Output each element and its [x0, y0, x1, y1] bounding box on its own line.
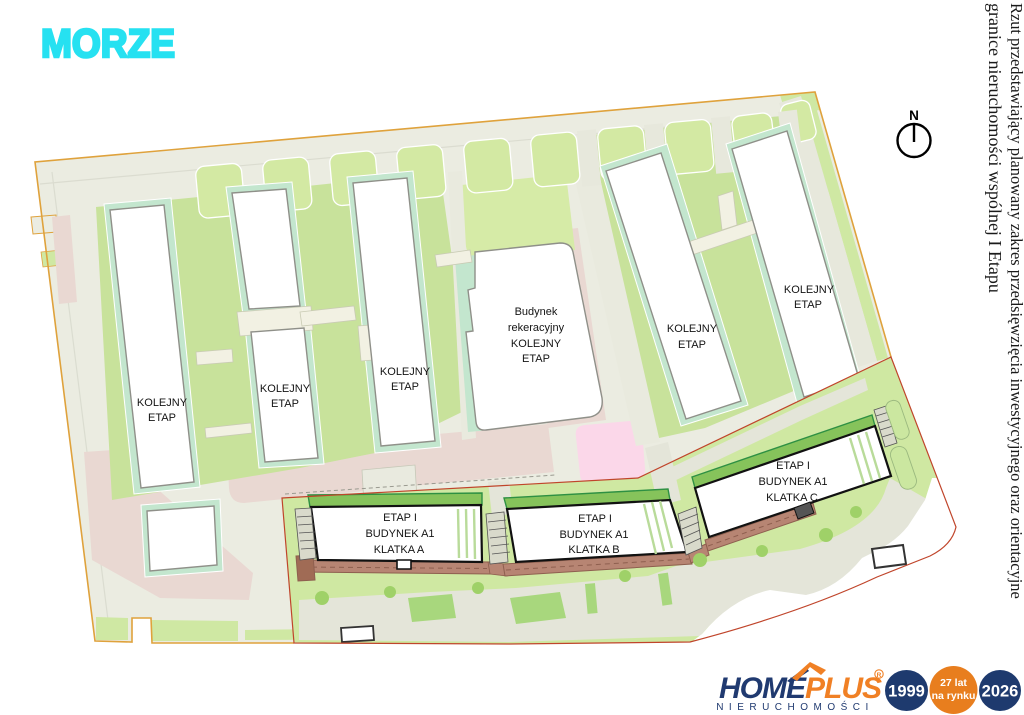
svg-text:KOLEJNY: KOLEJNY — [667, 323, 718, 335]
svg-text:2026: 2026 — [982, 683, 1019, 701]
svg-text:rekeracyjny: rekeracyjny — [508, 322, 565, 334]
svg-text:ETAP: ETAP — [148, 412, 176, 424]
svg-text:KLATKA B: KLATKA B — [568, 544, 619, 556]
svg-text:KOLEJNY: KOLEJNY — [380, 366, 431, 378]
svg-text:ETAP: ETAP — [271, 398, 299, 410]
svg-text:BUDYNEK A1: BUDYNEK A1 — [559, 529, 628, 541]
svg-text:BUDYNEK A1: BUDYNEK A1 — [758, 476, 827, 488]
svg-text:1999: 1999 — [888, 683, 925, 701]
svg-text:R: R — [877, 672, 882, 679]
svg-text:27 lat: 27 lat — [940, 677, 967, 689]
svg-text:ETAP I: ETAP I — [383, 512, 417, 524]
svg-text:NIERUCHOMOŚCI: NIERUCHOMOŚCI — [716, 700, 874, 713]
svg-text:KLATKA C: KLATKA C — [766, 492, 818, 504]
svg-text:granice nieruchomości wspólnej: granice nieruchomości wspólnej I Etapu — [985, 3, 1005, 293]
svg-text:KOLEJNY: KOLEJNY — [260, 383, 311, 395]
svg-text:ETAP: ETAP — [391, 381, 419, 393]
svg-text:KLATKA A: KLATKA A — [374, 544, 425, 556]
svg-text:KOLEJNY: KOLEJNY — [137, 397, 188, 409]
svg-text:KOLEJNY: KOLEJNY — [511, 338, 562, 350]
svg-text:ETAP I: ETAP I — [578, 513, 612, 525]
svg-text:ETAP I: ETAP I — [776, 460, 810, 472]
svg-text:MORZE: MORZE — [41, 22, 175, 66]
svg-text:Budynek: Budynek — [515, 306, 558, 318]
svg-text:na rynku: na rynku — [932, 690, 976, 702]
svg-text:ETAP: ETAP — [678, 339, 706, 351]
svg-text:N: N — [909, 108, 919, 123]
svg-text:ETAP: ETAP — [522, 353, 550, 365]
svg-text:BUDYNEK A1: BUDYNEK A1 — [365, 528, 434, 540]
svg-text:KOLEJNY: KOLEJNY — [784, 284, 835, 296]
svg-text:Rzut przedstawiający planowany: Rzut przedstawiający planowany zakres pr… — [1007, 3, 1024, 599]
svg-text:ETAP: ETAP — [794, 299, 822, 311]
